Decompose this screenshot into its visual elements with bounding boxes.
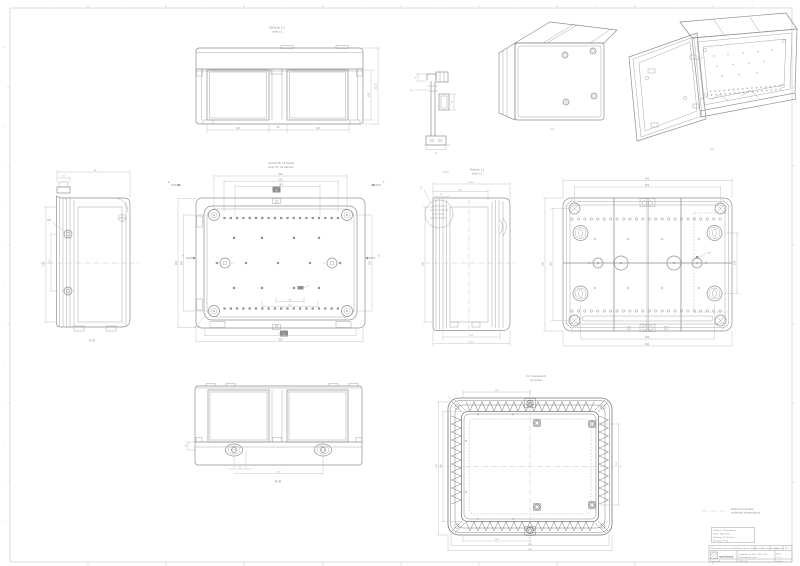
svg-text:180: 180 [278,183,283,187]
svg-text:Maßstab 1:2: Maßstab 1:2 [470,168,485,172]
drawing-number: 10601301 [739,561,750,563]
svg-text:F: F [4,442,6,444]
svg-text:110: 110 [316,126,321,130]
cad-drawing: 1 2 3 4 5 6 7 8 9 10 A B C D E F G Maßst… [0,0,800,566]
section-top-dimensions: 111.5 104 13 [433,182,510,200]
lid-screws [562,48,597,105]
svg-text:3.5: 3.5 [410,90,414,92]
svg-text:B: B [4,126,6,128]
svg-text:ø4.2: ø4.2 [194,325,200,329]
hinge-detail-view: 8 3.5 16 12 [410,72,456,155]
rear-elevation-view: 14 22 152 B-B [185,384,362,484]
sheet-frame: 1 2 3 4 5 6 7 8 9 10 A B C D E F G [4,5,795,565]
svg-text:300: 300 [645,177,650,181]
svg-text:20: 20 [277,125,280,129]
revision-index: Index c [777,561,785,563]
gasket-subtitle: der Haube [530,378,543,382]
plan-subtitle: ohne Tür, mit Rahmen [268,165,294,169]
svg-text:A: A [275,188,277,192]
view-title: Maßstab 1:2 [269,26,285,30]
svg-text:152: 152 [616,461,618,465]
svg-text:104: 104 [733,260,737,265]
svg-text:scale 1:2: scale 1:2 [472,171,483,175]
note-line-2: umlaufend eingeschäumt [731,510,760,514]
plan-view-base: Ansicht TB: mit Deckel ohne Tür, mit Rah… [168,161,385,342]
pilot-dots [465,414,513,520]
section-label: E-E [89,339,96,343]
note-line-1: Dichtung im Deckel [731,507,754,511]
hole-row-top [223,217,339,219]
thread-callout: M6 [47,218,51,222]
svg-text:300: 300 [645,342,650,346]
interior-holes-scattered [713,49,772,76]
svg-text:24: 24 [62,176,65,178]
svg-text:96: 96 [94,170,97,172]
iso-scale: 1:4 [550,127,554,131]
marker-callout: M4 [708,253,712,255]
svg-text:A: A [4,46,6,49]
rib-band-right [599,416,609,504]
side-section-view-e: 24 96 M6 230 114 E-E [40,170,140,343]
protection-note: Weitergabe sowie Vervielfältigung dieses… [711,547,785,550]
svg-text:3: 3 [204,6,206,8]
svg-text:8: 8 [595,6,597,8]
drawing-number-label: Zeichn.-Nr. [711,560,722,563]
section-label-top: C-C [443,170,449,174]
svg-text:B: B [182,254,184,258]
gasket-title: CA: Innenansicht [526,374,546,378]
svg-text:E: E [168,180,170,184]
svg-text:230: 230 [42,261,46,266]
isometric-open-view: 1:4 [629,13,797,151]
interior-hole-row-1 [710,85,780,92]
svg-text:254: 254 [645,183,650,187]
svg-text:Dichtung: PU-Schaum: Dichtung: PU-Schaum [713,536,735,539]
svg-text:200: 200 [179,260,183,265]
bottom-exterior-view: M4 300 254 230 200 104 230 300 [541,177,739,347]
frame-row-labels: A B C D E F G [4,46,6,523]
svg-text:12: 12 [435,153,438,155]
cover-screws [64,230,72,295]
svg-text:200: 200 [549,261,553,266]
title-block: Weitergabe sowie Vervielfältigung dieses… [709,546,792,563]
svg-text:230: 230 [421,261,425,266]
svg-text:220: 220 [278,178,283,182]
svg-text:F: F [383,180,385,184]
svg-text:8: 8 [416,76,418,78]
svg-text:230: 230 [541,261,545,266]
section-label: B-B [275,480,282,484]
svg-text:254: 254 [278,172,283,176]
brand-name: spelsberg [719,554,733,558]
corner-screws [569,203,726,326]
isometric-closed-view: 1:4 [499,22,617,131]
mounting-holes [573,226,722,302]
side-section-view-c: C-C Maßstab 1:2 scale 1:2 111.5 104 13 Z [420,168,516,347]
hole-row-top [571,218,722,220]
svg-text:111.5: 111.5 [468,342,474,344]
svg-text:10: 10 [751,6,754,8]
brand-logo: spelsberg [711,552,734,559]
svg-text:230: 230 [645,335,650,339]
view-subtitle: scale 1:2 [272,30,283,34]
plan-title: Ansicht TB: mit Deckel [268,161,294,165]
material-note-box: Gehäuse: Polycarbonat Farbe: RAL 7035 Di… [712,528,755,543]
svg-text:100: 100 [367,92,371,97]
svg-text:111.5: 111.5 [468,182,474,184]
svg-text:230: 230 [436,463,438,467]
side-left-dimensions: 230 114 [42,207,57,322]
svg-text:9: 9 [673,6,675,8]
leader-note: Dichtung im Deckel umlaufend eingeschäum… [702,507,760,515]
svg-text:6: 6 [439,6,441,8]
svg-text:D: D [378,254,380,258]
svg-text:7: 7 [517,6,519,8]
sheet-value: Bl. 1 [785,548,790,550]
front-elevation-view: Maßstab 1:2 scale 1:2 100 111.5 110 20 1 [196,26,380,134]
iso-open-scale: 1:4 [710,147,714,151]
svg-text:D: D [4,284,6,286]
svg-text:200: 200 [441,463,443,467]
svg-text:Farbe: RAL 7035: Farbe: RAL 7035 [713,533,730,536]
svg-text:110: 110 [236,126,241,130]
drawing-sheet: 1 2 3 4 5 6 7 8 9 10 A B C D E F G Maßst… [0,0,800,566]
svg-text:C: C [4,205,6,207]
svg-text:270: 270 [278,332,283,336]
svg-text:230: 230 [174,260,178,265]
svg-text:16: 16 [452,100,454,103]
product-line-1: Leergehäuse 300 x 230 x 111 [739,553,768,556]
svg-text:E: E [4,363,6,365]
svg-text:5: 5 [360,6,362,8]
svg-text:13: 13 [440,194,443,196]
base-screw-bosses [226,444,332,456]
frame-ticks [7,5,795,565]
knockouts-center [593,256,702,270]
svg-text:Schutzart IP 66: Schutzart IP 66 [713,540,729,543]
frame-border [10,8,792,562]
svg-text:G: G [4,521,6,523]
svg-text:Gehäuse: Polycarbonat: Gehäuse: Polycarbonat [713,529,736,532]
hole-row-bottom [223,307,339,309]
product-line-2: Polycarbonat, grau [739,556,758,559]
svg-text:300: 300 [278,338,283,342]
sheet-count: 1 v. 1 [777,557,783,559]
svg-text:111.5: 111.5 [374,82,378,89]
svg-text:200: 200 [368,260,372,265]
section-bottom-dimensions: 104 111.5 230 [421,207,511,346]
svg-text:4: 4 [282,6,284,8]
svg-text:14: 14 [185,444,187,447]
lid-interior-view: CA: Innenansicht der Haube [436,374,622,551]
svg-text:2: 2 [126,6,128,8]
rib-band-left [452,416,462,504]
detail-marker: Z [420,186,422,190]
sheet-label: Blatt [777,552,782,555]
svg-text:1: 1 [48,6,50,8]
